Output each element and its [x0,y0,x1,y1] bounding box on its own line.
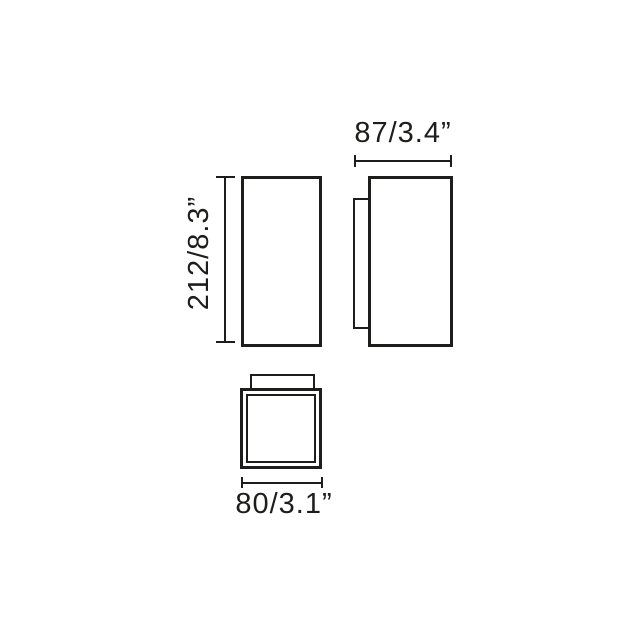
height-dimension-line [224,177,226,343]
depth-dimension-line [355,160,451,162]
height-dimension-label: 212/8.3” [180,163,220,343]
width-dimension-label: 80/3.1” [232,485,336,523]
front-view-outline [241,176,322,347]
top-view-outer-outline [240,388,322,469]
dimension-drawing: 212/8.3” 87/3.4” 80/3.1” [0,0,640,640]
top-view-inner-outline [246,394,316,463]
depth-dimension-label: 87/3.4” [343,114,463,152]
side-view-body-outline [368,176,453,347]
depth-dimension-tick-right [450,155,452,167]
width-dimension-line [242,482,322,484]
depth-dimension-tick-left [354,155,356,167]
